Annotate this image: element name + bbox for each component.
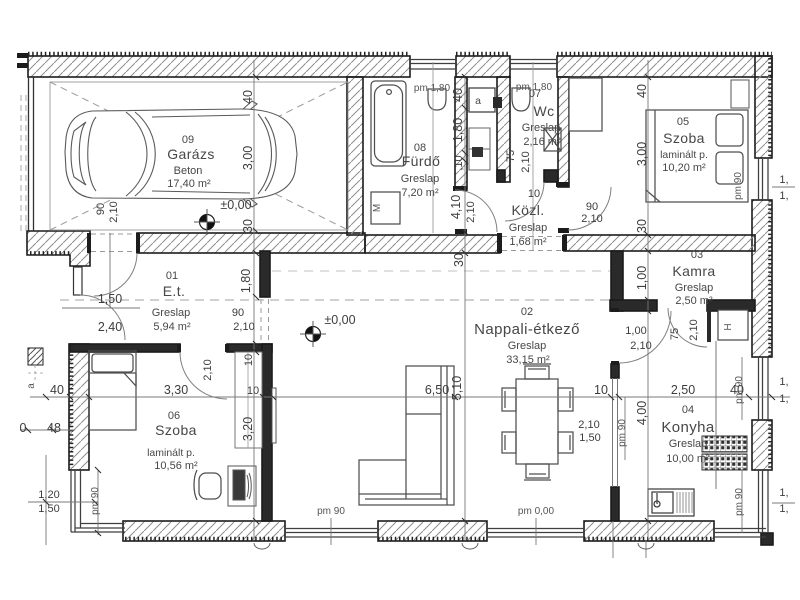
svg-text:1,50: 1,50: [38, 503, 59, 515]
svg-text:30: 30: [452, 253, 466, 267]
svg-text:10,20 m²: 10,20 m²: [662, 162, 706, 174]
svg-text:1,: 1,: [779, 393, 788, 405]
svg-text:06: 06: [168, 410, 180, 422]
svg-text:1,: 1,: [779, 503, 788, 515]
svg-text:2,10: 2,10: [233, 321, 254, 333]
svg-text:10: 10: [243, 354, 255, 366]
svg-text:17,40 m²: 17,40 m²: [167, 178, 211, 190]
svg-text:1,00: 1,00: [625, 325, 646, 337]
svg-text:,10: ,10: [453, 155, 465, 170]
svg-text:03: 03: [691, 249, 703, 261]
svg-text:pm 0,00: pm 0,00: [518, 506, 555, 517]
svg-text:Greslap: Greslap: [675, 282, 714, 294]
svg-text:pm 90: pm 90: [734, 488, 745, 516]
svg-text:1,00: 1,00: [635, 266, 649, 290]
svg-text:10: 10: [247, 385, 259, 397]
svg-text:48: 48: [47, 421, 61, 435]
svg-text:1,: 1,: [779, 174, 788, 186]
svg-text:Beton: Beton: [174, 165, 203, 177]
svg-text:2,16 m²: 2,16 m²: [523, 136, 561, 148]
svg-text:1,68 m²: 1,68 m²: [509, 236, 547, 248]
svg-text:09: 09: [182, 134, 194, 146]
svg-text:Nappali-étkező: Nappali-étkező: [474, 321, 580, 338]
svg-text:2,40: 2,40: [98, 320, 122, 334]
svg-text:Greslap: Greslap: [401, 173, 440, 185]
svg-text:2,10: 2,10: [630, 340, 651, 352]
svg-text:Közl.: Közl.: [511, 202, 544, 218]
svg-text:a: a: [26, 383, 37, 389]
svg-text:Greslap: Greslap: [522, 122, 561, 134]
svg-text:90: 90: [95, 203, 107, 215]
svg-text:1,50: 1,50: [98, 292, 122, 306]
svg-text:40: 40: [50, 383, 64, 397]
svg-text:40: 40: [241, 90, 255, 104]
svg-text:pm 1,80: pm 1,80: [516, 82, 553, 93]
svg-text:pm 90: pm 90: [733, 172, 744, 200]
svg-text:2,50: 2,50: [671, 383, 695, 397]
svg-text:1,20: 1,20: [38, 489, 59, 501]
svg-text:10,00 m²: 10,00 m²: [666, 453, 710, 465]
svg-text:3,00: 3,00: [241, 146, 255, 170]
svg-text:1,: 1,: [779, 487, 788, 499]
svg-text:Szoba: Szoba: [663, 130, 705, 146]
svg-text:75: 75: [669, 328, 681, 340]
svg-text:10: 10: [594, 383, 608, 397]
svg-text:2,50 m²: 2,50 m²: [675, 295, 713, 307]
svg-text:5,10: 5,10: [450, 376, 464, 400]
svg-text:5,94 m²: 5,94 m²: [153, 321, 191, 333]
svg-text:pm 90: pm 90: [617, 419, 628, 447]
svg-text:02: 02: [521, 306, 533, 318]
svg-text:10,56 m²: 10,56 m²: [154, 460, 198, 472]
svg-text:10: 10: [528, 188, 540, 200]
svg-text:Greslap: Greslap: [669, 438, 708, 450]
svg-text:Greslap: Greslap: [508, 340, 547, 352]
svg-text:H: H: [723, 323, 734, 330]
svg-text:Greslap: Greslap: [509, 222, 548, 234]
svg-text:2,10: 2,10: [202, 359, 214, 380]
svg-text:75: 75: [505, 150, 517, 162]
svg-text:01: 01: [166, 270, 178, 282]
svg-text:2,10: 2,10: [578, 419, 599, 431]
svg-text:30: 30: [241, 219, 255, 233]
svg-text:90: 90: [586, 201, 598, 213]
svg-text:4,00: 4,00: [635, 401, 649, 425]
svg-text:pm 1,80: pm 1,80: [414, 83, 451, 94]
svg-text:4,10: 4,10: [449, 195, 463, 219]
svg-text:±0,00: ±0,00: [220, 198, 251, 212]
svg-text:M: M: [372, 204, 383, 212]
svg-text:1,50: 1,50: [579, 432, 600, 444]
svg-text:3,30: 3,30: [164, 383, 188, 397]
svg-text:Wc: Wc: [533, 103, 554, 119]
svg-text:pm 90: pm 90: [90, 487, 101, 515]
svg-text:1,80: 1,80: [451, 118, 465, 142]
svg-text:90: 90: [232, 307, 244, 319]
svg-text:1,: 1,: [779, 190, 788, 202]
svg-text:2,10: 2,10: [108, 201, 120, 222]
svg-text:1,80: 1,80: [239, 269, 253, 293]
svg-text:04: 04: [682, 404, 694, 416]
svg-text:3,00: 3,00: [635, 142, 649, 166]
svg-text:E.t.: E.t.: [163, 283, 186, 299]
svg-text:pm 90: pm 90: [317, 506, 345, 517]
svg-text:3,20: 3,20: [241, 417, 255, 441]
svg-text:Konyha: Konyha: [661, 419, 715, 436]
svg-text:2,10: 2,10: [520, 151, 532, 172]
svg-text:Greslap: Greslap: [152, 307, 191, 319]
svg-text:Szoba: Szoba: [155, 422, 197, 438]
svg-text:2,10: 2,10: [688, 319, 700, 340]
svg-text:40: 40: [635, 84, 649, 98]
svg-text:1,: 1,: [779, 376, 788, 388]
svg-text:05: 05: [677, 116, 689, 128]
svg-text:pm 90: pm 90: [734, 376, 745, 404]
svg-text:Fürdő: Fürdő: [402, 153, 441, 169]
svg-text:0: 0: [20, 421, 27, 435]
svg-text:±0,00: ±0,00: [324, 313, 355, 327]
svg-text:40: 40: [451, 88, 465, 102]
svg-text:30: 30: [635, 219, 649, 233]
svg-text:33,15 m²: 33,15 m²: [506, 354, 550, 366]
svg-text:2,10: 2,10: [465, 201, 477, 222]
svg-text:7,20 m²: 7,20 m²: [401, 187, 439, 199]
svg-text:Kamra: Kamra: [672, 263, 715, 279]
svg-text:laminált p.: laminált p.: [660, 149, 708, 161]
svg-text:6,50: 6,50: [425, 383, 449, 397]
svg-text:laminált p.: laminált p.: [147, 447, 195, 459]
svg-text:Garázs: Garázs: [167, 146, 215, 162]
svg-text:2,10: 2,10: [581, 213, 602, 225]
svg-text:a: a: [475, 95, 481, 107]
